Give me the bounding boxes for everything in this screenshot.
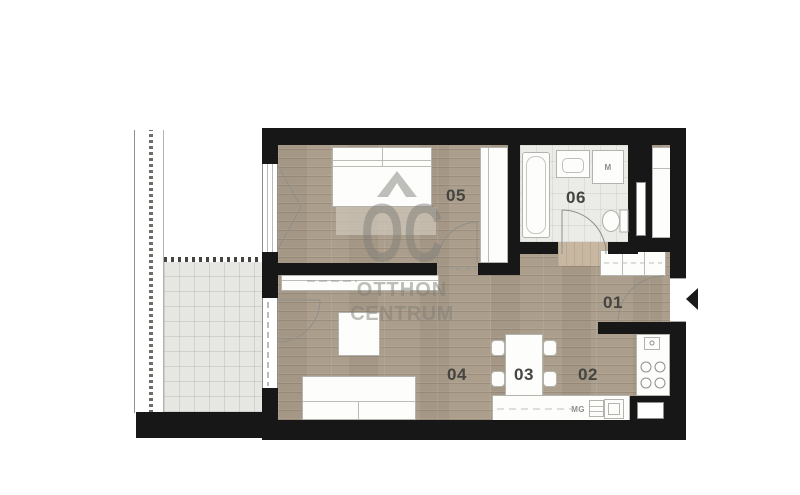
wall-wardrobe-nook xyxy=(652,238,672,252)
wall-right-lower xyxy=(670,322,686,420)
bed-center-line xyxy=(382,148,383,166)
hall-wardrobe xyxy=(652,147,672,238)
wall-bottom xyxy=(262,420,686,440)
wall-bathroom-bottom-left xyxy=(508,242,558,254)
balcony-edge-dotted-line xyxy=(164,257,262,262)
kitchen-corner-shaft xyxy=(637,402,664,419)
wall-top xyxy=(262,128,686,145)
wall-bedroom-living-right xyxy=(478,263,508,275)
wall-bedroom-bathroom xyxy=(508,145,520,275)
bedroom-window xyxy=(262,164,278,252)
dishwasher-front xyxy=(589,400,604,417)
wall-left-lower-b xyxy=(262,388,278,420)
room-label-entry: 01 xyxy=(603,293,623,313)
sofa-center-line xyxy=(358,401,359,419)
kitchen-sink xyxy=(604,399,624,419)
dining-chair xyxy=(491,340,505,356)
balcony-tile-floor xyxy=(164,262,262,412)
balcony-railing-ticked-line xyxy=(149,130,153,413)
balcony-railing-outer-line xyxy=(134,130,135,413)
wall-hall-kitchen xyxy=(598,322,672,334)
dishwasher-line xyxy=(590,406,603,407)
washing-machine: M xyxy=(592,150,624,184)
sofa xyxy=(302,376,416,420)
sofa-seat-line xyxy=(303,401,415,402)
hall-cabinet-divider xyxy=(644,251,645,275)
room-label-living: 04 xyxy=(447,365,467,385)
dining-chair xyxy=(491,371,505,387)
hall-cabinet-divider xyxy=(622,251,623,275)
wall-balcony-bottom xyxy=(136,412,262,438)
watermark-logo: OC xyxy=(349,202,455,264)
wall-left-upper xyxy=(262,128,278,164)
kitchen-sink-basin xyxy=(608,403,620,415)
utility-shaft xyxy=(636,182,646,236)
room-label-bathroom: 06 xyxy=(566,188,586,208)
kitchen-small-sink xyxy=(644,337,660,350)
room-label-dining: 03 xyxy=(514,365,534,385)
floor-plan: MG M xyxy=(0,0,800,495)
wall-left-mid xyxy=(262,252,278,263)
dishwasher-label: MG xyxy=(568,402,588,416)
wardrobe-divider-line xyxy=(488,148,489,262)
bathroom-sink xyxy=(556,150,590,178)
bathroom-sink-basin xyxy=(562,158,584,173)
dishwasher-line xyxy=(590,411,603,412)
room-label-bedroom: 05 xyxy=(446,186,466,206)
watermark-text-line1: OTTHON xyxy=(322,279,482,302)
dining-chair xyxy=(543,340,557,356)
wall-right-upper xyxy=(670,145,686,278)
dining-chair xyxy=(543,371,557,387)
entry-door-opening xyxy=(670,278,686,322)
entry-arrow-icon xyxy=(686,288,698,310)
watermark-text-line2: CENTRUM xyxy=(322,303,482,326)
bedroom-wardrobe xyxy=(480,147,508,263)
room-label-kitchen: 02 xyxy=(578,365,598,385)
hall-wardrobe-shelf-line xyxy=(653,168,671,169)
bed-linen-line xyxy=(333,166,431,167)
balcony-sliding-door xyxy=(262,298,278,388)
bathtub-inner xyxy=(526,156,546,234)
wall-left-lower-a xyxy=(262,275,278,300)
bathtub xyxy=(522,152,550,238)
